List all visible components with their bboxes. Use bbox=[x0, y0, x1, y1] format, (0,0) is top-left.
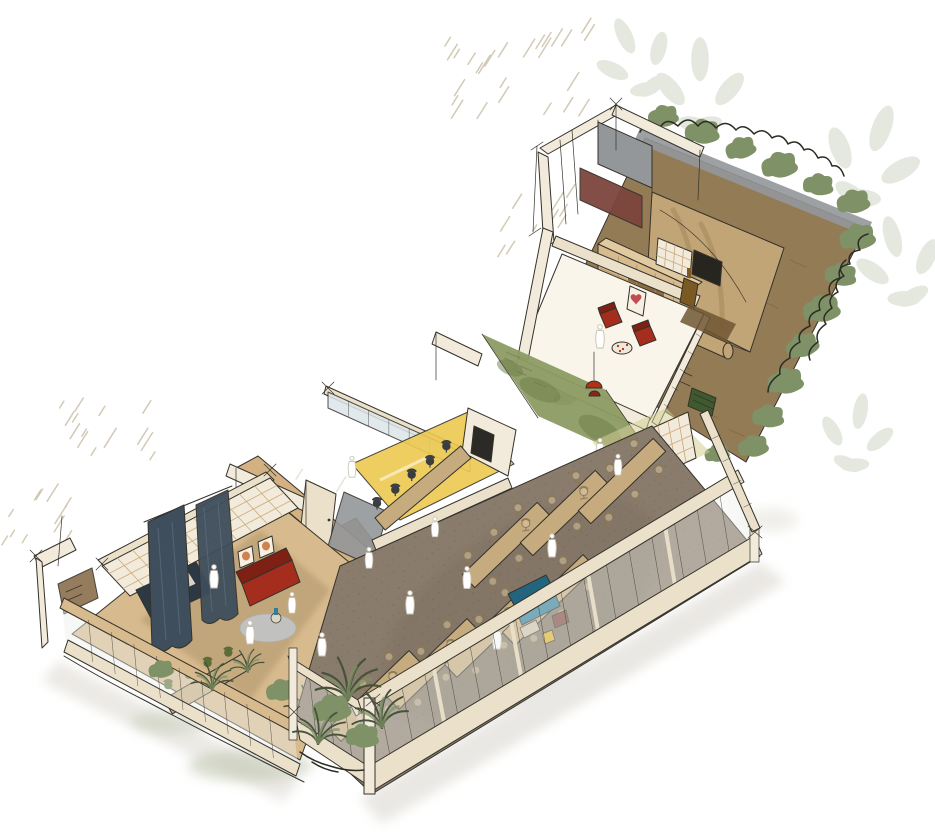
axonometric-floorplan-illustration bbox=[0, 0, 935, 836]
illustration-canvas bbox=[0, 0, 935, 836]
corner-post-right bbox=[750, 528, 759, 562]
chair-icon bbox=[224, 648, 232, 657]
door-knob bbox=[328, 519, 331, 522]
corner-post-left bbox=[289, 648, 297, 740]
patterned-round-table bbox=[612, 342, 632, 354]
